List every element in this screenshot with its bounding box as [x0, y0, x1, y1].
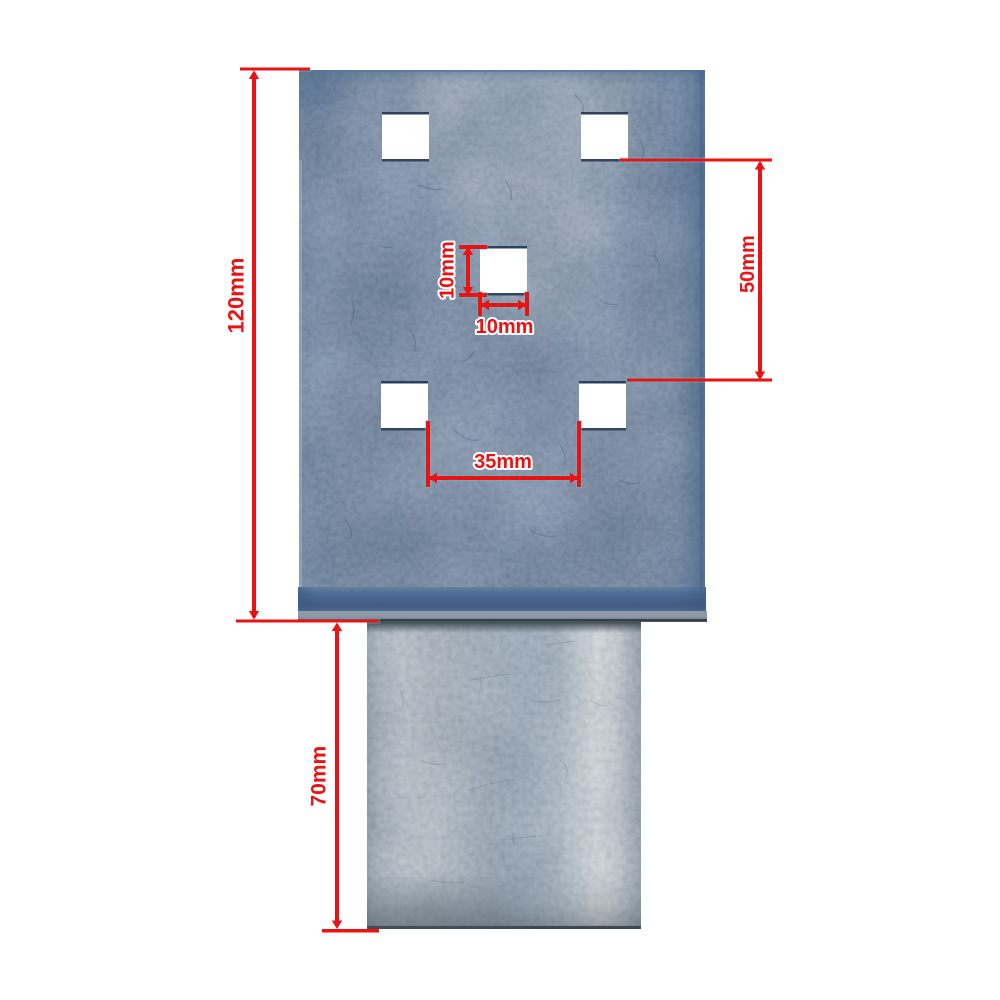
svg-text:50mm: 50mm — [737, 235, 759, 293]
svg-text:35mm: 35mm — [474, 451, 532, 473]
svg-text:120mm: 120mm — [224, 258, 249, 334]
svg-text:10mm: 10mm — [437, 241, 459, 299]
svg-text:70mm: 70mm — [308, 746, 331, 807]
svg-text:10mm: 10mm — [476, 316, 534, 338]
